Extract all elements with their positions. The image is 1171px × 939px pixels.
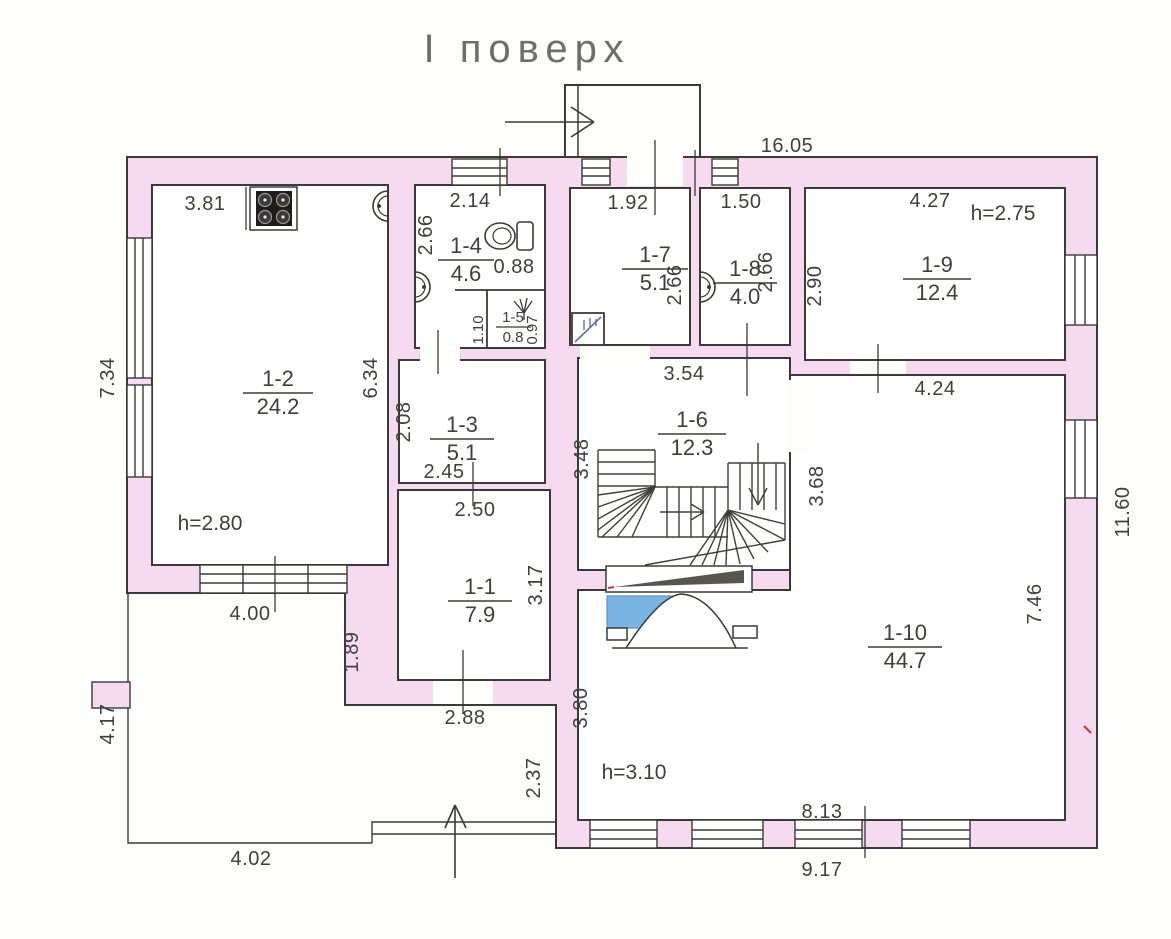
room-label: 1-10 (883, 620, 927, 645)
dim-r7-top: 1.92 (608, 192, 649, 214)
room-1-3: 1-3 5.1 (399, 360, 545, 483)
plan-title: І поверх (424, 27, 631, 71)
ramp (606, 566, 752, 592)
dim-right-outer: 11.60 (1112, 486, 1134, 537)
boiler-icon (572, 313, 604, 345)
dim-terrace-right: 1.89 (341, 632, 363, 673)
room-label: 1-4 (450, 233, 482, 258)
room-label: 1-2 (262, 366, 294, 391)
dim-r4-top: 2.14 (450, 190, 491, 212)
room-height: h=2.75 (971, 202, 1036, 225)
room-label: 1-1 (464, 574, 496, 599)
dim-r1-bottom: 2.88 (445, 707, 486, 729)
dim-r8-top: 1.50 (721, 191, 762, 213)
dim-r4-inner: 0.88 (494, 256, 535, 278)
window (712, 159, 738, 185)
dim-r10-bottom-inner: 8.13 (802, 801, 843, 823)
dim-r5-left: 1.10 (470, 315, 487, 344)
room-area: 24.2 (257, 394, 300, 419)
room-area: 4.6 (451, 261, 482, 286)
dim-r2-right: 6.34 (360, 358, 382, 399)
room-label: 1-9 (921, 252, 953, 277)
dim-r7-right: 2.66 (664, 265, 686, 306)
room-label: 1-5 (502, 309, 524, 326)
dim-left-upper: 7.34 (97, 358, 119, 399)
dim-r8-right: 2.66 (755, 252, 777, 293)
room-area: 12.3 (671, 435, 714, 460)
floor-plan-page: І поверх 1-2 24.2 h=2.80 1-4 4.6 1- (0, 0, 1171, 939)
door-opening (788, 380, 814, 452)
stove-icon (246, 187, 297, 230)
dim-r9-top: 4.27 (910, 190, 951, 212)
dim-r6-top: 3.54 (664, 363, 705, 385)
dim-r10-right: 7.46 (1024, 584, 1046, 625)
room-area: 44.7 (884, 648, 927, 673)
window (692, 820, 763, 848)
toilet-icon (485, 222, 533, 250)
room-area: 7.9 (465, 602, 496, 627)
dim-r1-right: 3.17 (525, 565, 547, 606)
dim-r5-right: 0.97 (524, 315, 541, 344)
dim-top-total: 16.05 (761, 135, 814, 157)
dim-r6-right: 3.68 (806, 466, 828, 507)
dim-terrace-bottom: 4.02 (231, 848, 272, 870)
window (127, 238, 152, 378)
dim-bottom-outer: 9.17 (802, 859, 843, 881)
window (1065, 420, 1097, 498)
window (127, 385, 152, 477)
room-label: 1-7 (639, 242, 671, 267)
dim-r4-left: 2.66 (415, 215, 437, 256)
room-height: h=3.10 (602, 761, 667, 784)
dim-terrace-wall: 2.37 (523, 758, 545, 799)
dim-left-lower: 4.17 (97, 704, 119, 745)
dim-r10-left: 3.80 (570, 688, 592, 729)
door-opening (420, 345, 460, 361)
door-opening (580, 346, 650, 360)
window (590, 820, 657, 848)
room-height: h=2.80 (178, 512, 243, 535)
dim-r1-top: 2.50 (455, 499, 496, 521)
room-label: 1-3 (446, 412, 478, 437)
dim-r3-left: 2.08 (393, 402, 415, 443)
dim-r10-top: 4.24 (915, 378, 956, 400)
dim-r3-bottom: 2.45 (424, 461, 465, 483)
dim-r6-left: 3.48 (571, 439, 593, 480)
entry-porch (565, 85, 700, 157)
window (452, 159, 507, 185)
room-1-9: 1-9 12.4 h=2.75 (805, 188, 1065, 360)
room-area: 0.8 (503, 329, 524, 346)
dim-r2-bottom: 4.00 (230, 603, 271, 625)
room-area: 12.4 (916, 280, 959, 305)
window (1065, 255, 1097, 325)
dim-r2-top: 3.81 (185, 193, 226, 215)
floor-plan-drawing: І поверх 1-2 24.2 h=2.80 1-4 4.6 1- (0, 0, 1171, 939)
window (200, 565, 347, 593)
window (795, 820, 862, 848)
room-1-2: 1-2 24.2 h=2.80 (152, 185, 388, 565)
dim-r9-left: 2.90 (804, 266, 826, 307)
terrace-arrow-icon (445, 805, 466, 878)
window (582, 159, 610, 185)
room-label: 1-6 (676, 407, 708, 432)
window (902, 820, 970, 848)
